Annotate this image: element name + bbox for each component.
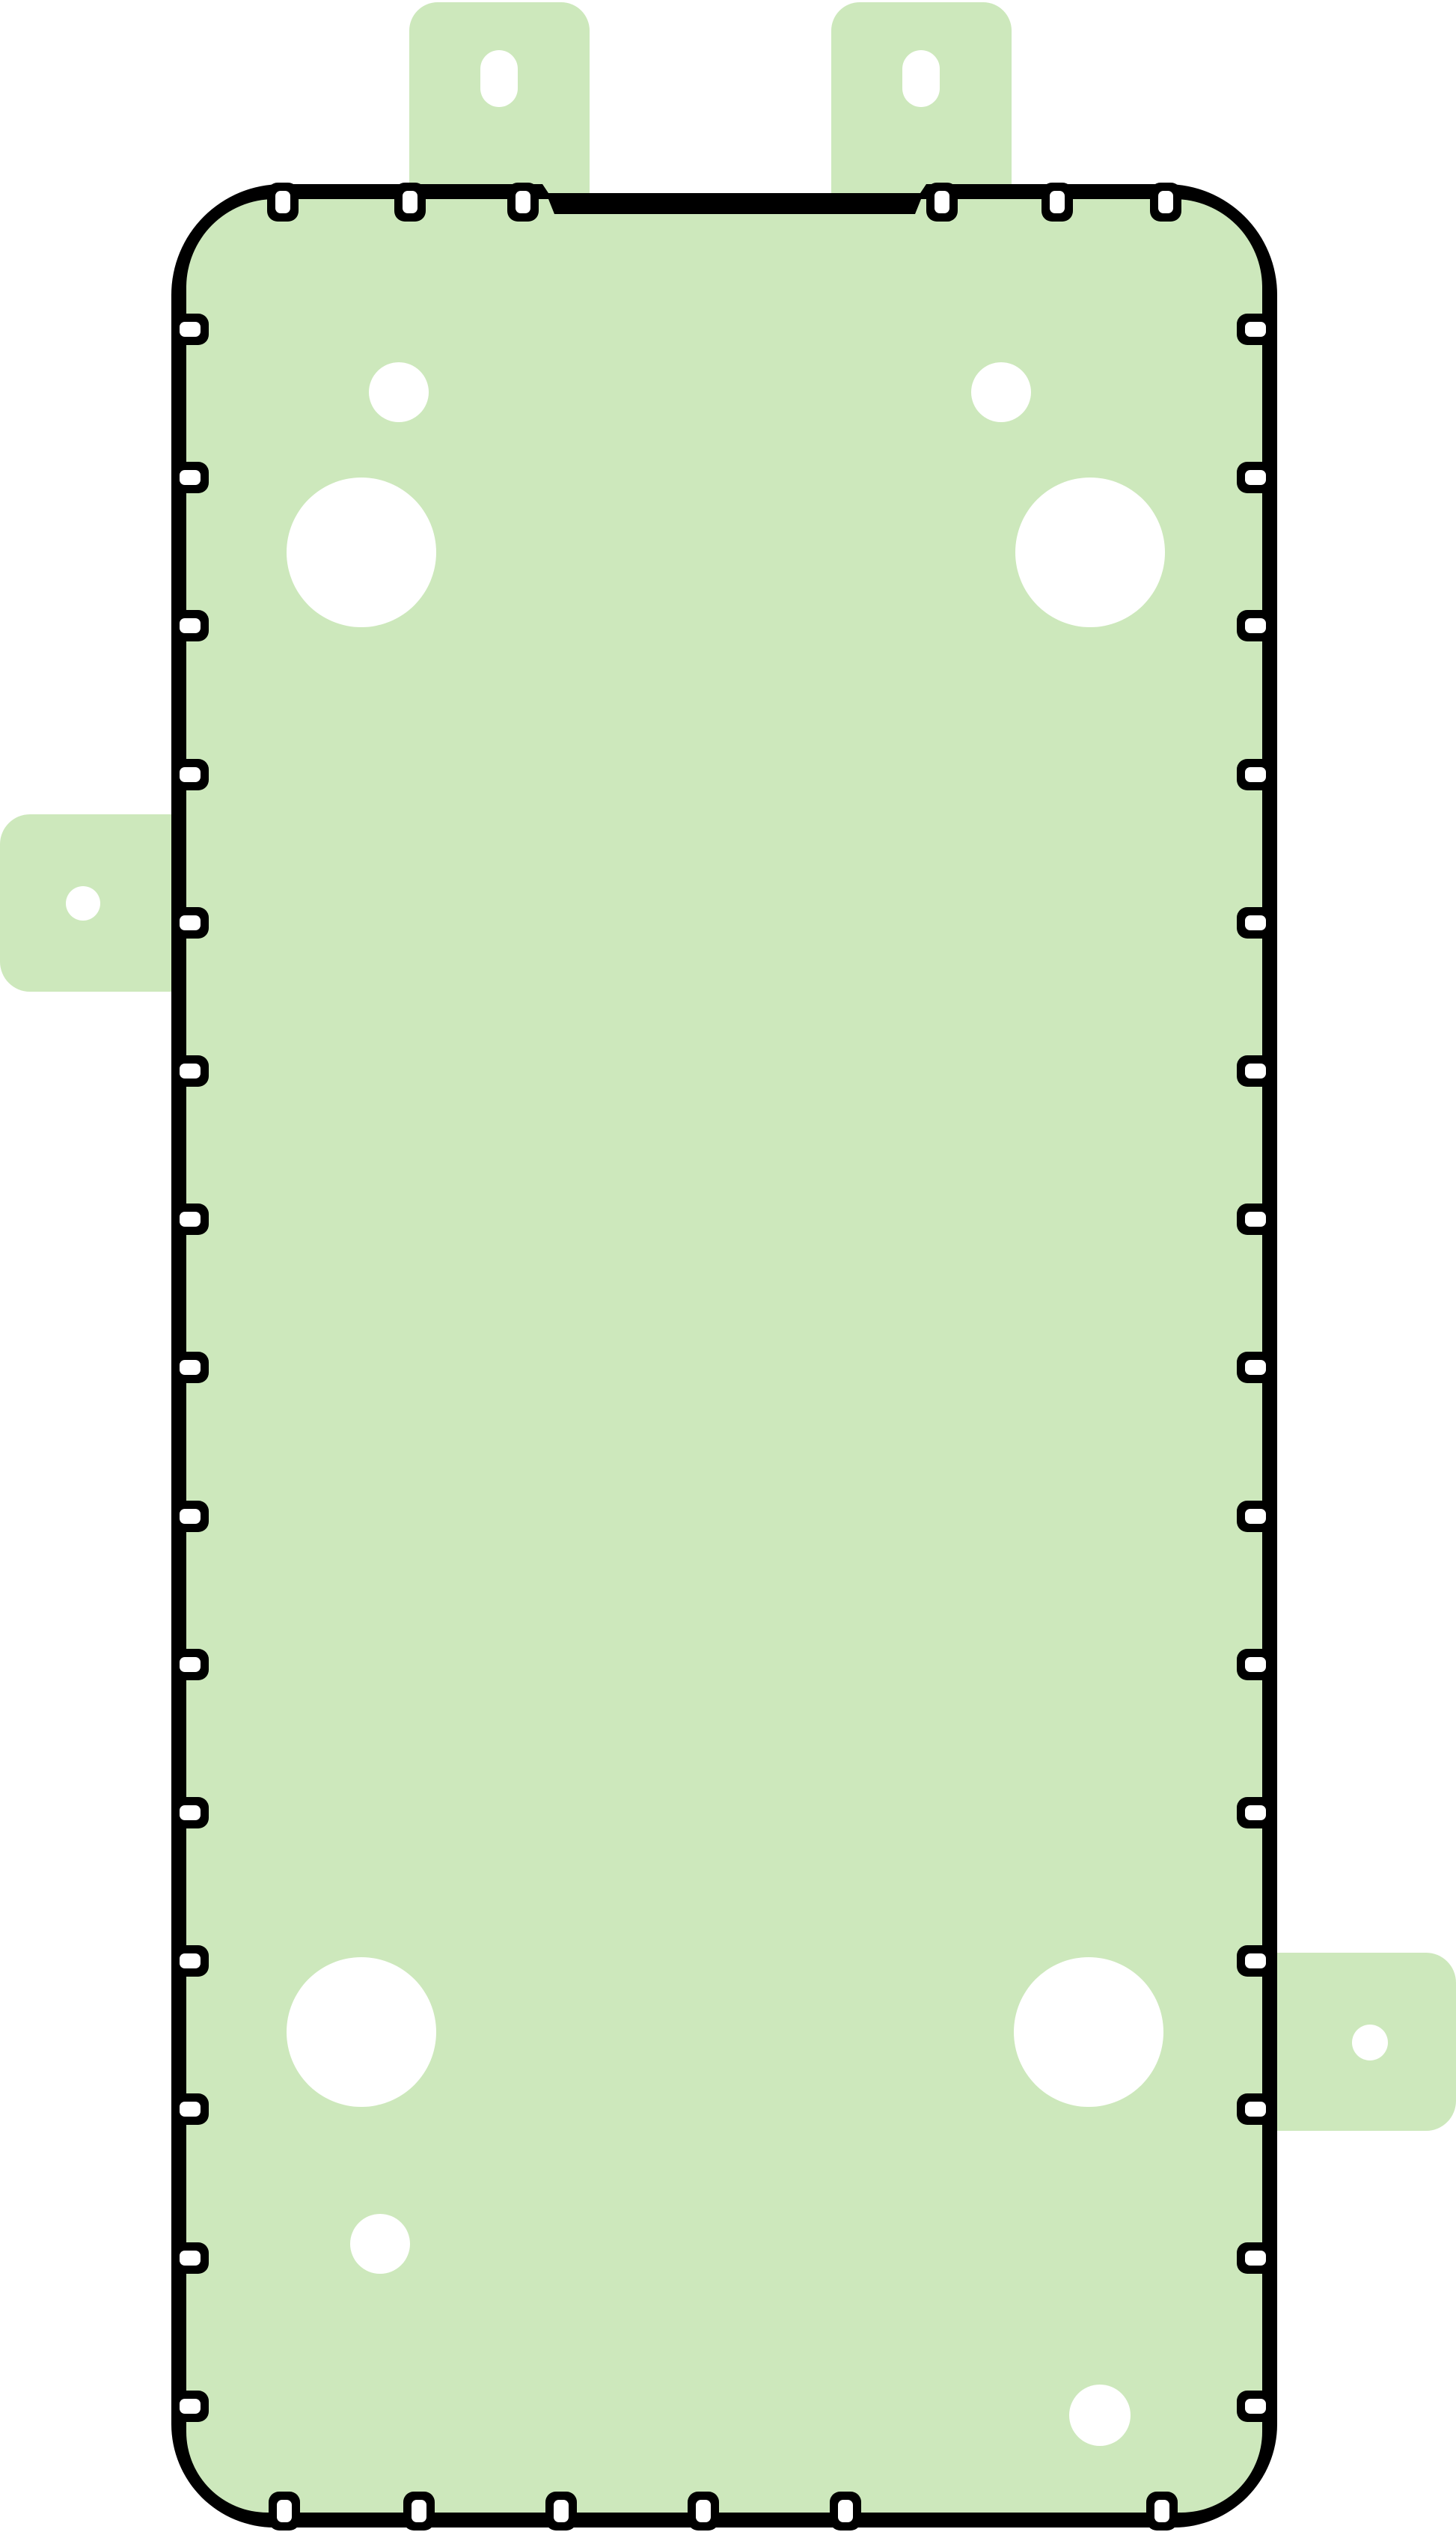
cutout-large-bottom-left xyxy=(287,1957,436,2107)
tick-right-4 xyxy=(1245,767,1266,782)
tick-left-5 xyxy=(180,915,201,930)
tick-top-2 xyxy=(403,191,417,213)
tick-left-13 xyxy=(180,2102,201,2117)
tick-left-4 xyxy=(180,767,201,782)
tick-bottom-4 xyxy=(696,2500,711,2522)
tick-left-10 xyxy=(180,1657,201,1672)
tick-left-3 xyxy=(180,618,201,633)
tick-right-7 xyxy=(1245,1212,1266,1227)
tick-left-1 xyxy=(180,322,201,337)
tick-top-3 xyxy=(516,191,530,213)
cutout-small-top-left xyxy=(369,362,429,422)
tick-left-14 xyxy=(180,2251,201,2266)
cutout-large-top-left xyxy=(287,478,436,627)
pull-tab-top-right-hole xyxy=(902,50,940,107)
adhesive-sticker-figure xyxy=(0,0,1456,2532)
tick-bottom-1 xyxy=(277,2500,292,2522)
tick-top-1 xyxy=(275,191,290,213)
cutout-small-bottom-right xyxy=(1069,2385,1131,2446)
tick-left-12 xyxy=(180,1953,201,1968)
tick-left-7 xyxy=(180,1212,201,1227)
tick-right-15 xyxy=(1245,2399,1266,2414)
tick-bottom-2 xyxy=(412,2500,426,2522)
tick-right-10 xyxy=(1245,1657,1266,1672)
tick-top-6 xyxy=(1158,191,1173,213)
tick-left-2 xyxy=(180,470,201,485)
pull-tab-left-hole xyxy=(66,886,100,921)
tick-right-13 xyxy=(1245,2102,1266,2117)
tick-right-2 xyxy=(1245,470,1266,485)
tick-right-8 xyxy=(1245,1360,1266,1375)
tick-right-1 xyxy=(1245,322,1266,337)
tick-right-3 xyxy=(1245,618,1266,633)
adhesive-sticker-canvas xyxy=(0,0,1456,2532)
cutout-large-bottom-right xyxy=(1014,1957,1163,2107)
tick-top-5 xyxy=(1050,191,1065,213)
tick-bottom-5 xyxy=(838,2500,853,2522)
tick-right-6 xyxy=(1245,1064,1266,1079)
tick-right-14 xyxy=(1245,2251,1266,2266)
tick-left-15 xyxy=(180,2399,201,2414)
tick-right-9 xyxy=(1245,1509,1266,1524)
cutout-small-top-right xyxy=(971,362,1031,422)
cutout-large-top-right xyxy=(1015,478,1165,627)
tick-left-9 xyxy=(180,1509,201,1524)
tick-left-8 xyxy=(180,1360,201,1375)
cutout-small-bottom-left xyxy=(350,2214,410,2274)
tick-bottom-3 xyxy=(554,2500,569,2522)
tick-right-12 xyxy=(1245,1953,1266,1968)
pull-tab-right-hole xyxy=(1352,2025,1388,2060)
pull-tab-top-left-hole xyxy=(480,50,518,107)
tick-top-4 xyxy=(935,191,949,213)
tick-bottom-6 xyxy=(1154,2500,1169,2522)
tick-right-11 xyxy=(1245,1805,1266,1820)
tick-left-6 xyxy=(180,1064,201,1079)
tick-left-11 xyxy=(180,1805,201,1820)
tick-right-5 xyxy=(1245,915,1266,930)
